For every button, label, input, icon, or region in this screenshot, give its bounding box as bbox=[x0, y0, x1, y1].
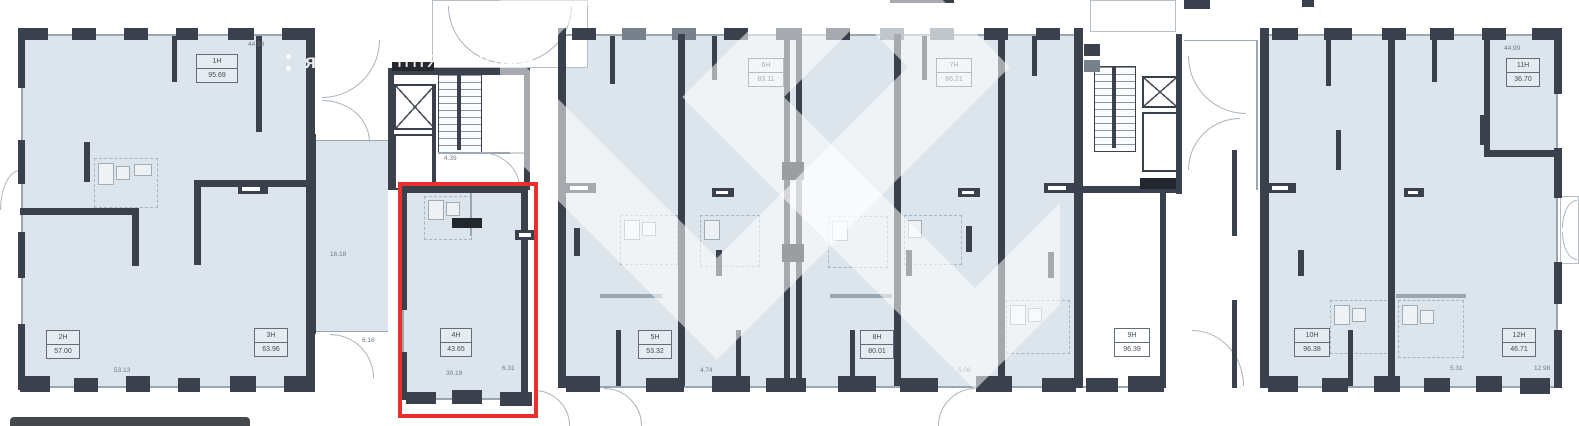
dimension-label: 44.33 bbox=[248, 42, 264, 49]
fixture bbox=[1028, 308, 1042, 322]
wall-line bbox=[1268, 34, 1558, 36]
pilaster bbox=[930, 28, 954, 40]
wall-line bbox=[316, 331, 388, 332]
door-arc bbox=[938, 388, 976, 426]
door-arc bbox=[0, 170, 20, 210]
wall-stub bbox=[610, 36, 615, 84]
door-wedge bbox=[1084, 60, 1100, 72]
door-arc bbox=[322, 100, 370, 142]
wall-segment bbox=[558, 28, 566, 388]
unit-id: 8Н bbox=[861, 331, 893, 345]
shaft-block bbox=[1140, 178, 1176, 189]
pilaster bbox=[178, 378, 200, 392]
wall-segment bbox=[132, 208, 139, 266]
dimension-label: 5.31 bbox=[1450, 366, 1463, 373]
unit-area: 95.69 bbox=[197, 69, 237, 82]
unit-id: 12Н bbox=[1503, 329, 1535, 343]
pilaster bbox=[1374, 376, 1400, 392]
wall-stub bbox=[1298, 250, 1304, 276]
wall-stub bbox=[906, 250, 912, 276]
pilaster bbox=[176, 28, 198, 40]
wall-stub bbox=[1048, 252, 1054, 278]
unit-label-10n[interactable]: 10Н 96.38 bbox=[1294, 328, 1330, 357]
unit-label-1n[interactable]: 1Н 95.69 bbox=[196, 54, 238, 83]
stair-stringer bbox=[1112, 66, 1116, 148]
pilaster bbox=[712, 376, 750, 392]
elevator-shaft bbox=[1142, 112, 1178, 172]
pilaster bbox=[838, 376, 876, 392]
unit-area: 57.00 bbox=[47, 345, 79, 358]
pilaster bbox=[1520, 378, 1550, 394]
wall-stub bbox=[616, 330, 621, 386]
unit-id: 6Н bbox=[749, 59, 783, 73]
unit-label-11n[interactable]: 11Н 36.70 bbox=[1506, 58, 1540, 87]
unit-id: 11Н bbox=[1507, 59, 1539, 73]
watermark-dot bbox=[286, 54, 291, 59]
party-wall bbox=[894, 34, 901, 386]
unit-label-8n[interactable]: 8Н 80.01 bbox=[860, 330, 894, 359]
wall-segment bbox=[20, 208, 136, 215]
pilaster bbox=[1036, 28, 1060, 40]
door-arc bbox=[1562, 200, 1577, 228]
dimension-label: 6.16 bbox=[362, 338, 375, 345]
watermark-dot bbox=[286, 66, 291, 71]
unit-id: 1Н bbox=[197, 55, 237, 69]
unit-id: 9Н bbox=[1115, 329, 1149, 343]
fixture bbox=[908, 220, 922, 238]
unit-label-7n[interactable]: 7Н 86.21 bbox=[936, 58, 972, 87]
wall-line bbox=[830, 294, 892, 298]
unit-label-12n[interactable]: 12Н 46.71 bbox=[1502, 328, 1536, 357]
fixture bbox=[704, 220, 720, 240]
pilaster bbox=[228, 28, 254, 40]
plan-fragment bbox=[890, 0, 954, 3]
wall-segment bbox=[1554, 330, 1562, 388]
door-arc bbox=[1562, 232, 1577, 260]
elevator bbox=[1142, 76, 1178, 108]
wall-segment bbox=[310, 134, 316, 334]
shaft-block bbox=[782, 162, 804, 180]
pilaster bbox=[1268, 376, 1298, 392]
unit-area: 53.32 bbox=[639, 345, 671, 358]
unit-id: 2Н bbox=[47, 331, 79, 345]
party-wall bbox=[784, 34, 790, 386]
unit-id: 3Н bbox=[255, 329, 287, 343]
wall-segment bbox=[1554, 262, 1562, 304]
wall-segment bbox=[18, 324, 25, 390]
entrance-canopy bbox=[1090, 0, 1176, 32]
wall-stub bbox=[1348, 330, 1353, 386]
unit-label-6n[interactable]: 6Н 83.11 bbox=[748, 58, 784, 87]
wall-segment bbox=[432, 84, 436, 186]
wall-segment bbox=[1484, 150, 1560, 157]
wall-segment bbox=[1554, 28, 1562, 94]
unit-id: 5Н bbox=[639, 331, 671, 345]
unit-id: 10Н bbox=[1295, 329, 1329, 343]
wall-segment bbox=[256, 36, 262, 132]
door-arc bbox=[322, 40, 380, 98]
wall-line bbox=[1268, 386, 1558, 388]
door-wedge bbox=[1084, 44, 1100, 56]
unit-area: 80.01 bbox=[861, 345, 893, 358]
door-arc bbox=[1188, 56, 1246, 114]
unit-area: 63.96 bbox=[255, 343, 287, 356]
unit-label-2n[interactable]: 2Н 57.00 bbox=[46, 330, 80, 359]
watermark-text-fragment: гни bbox=[336, 20, 367, 42]
shaft-block bbox=[392, 62, 434, 71]
wall-segment bbox=[1260, 28, 1269, 388]
counter-slot bbox=[962, 191, 974, 194]
party-wall bbox=[678, 34, 685, 386]
fixture bbox=[1010, 305, 1026, 325]
dimension-label: 4.39 bbox=[444, 156, 457, 163]
pilaster bbox=[74, 378, 98, 392]
door-arc bbox=[448, 6, 508, 64]
fixture bbox=[642, 222, 656, 236]
wall-line bbox=[20, 386, 312, 388]
pilaster bbox=[826, 28, 850, 40]
wall-segment bbox=[1160, 192, 1166, 388]
fixture bbox=[1352, 308, 1366, 322]
fixture bbox=[624, 220, 640, 240]
wall-stub bbox=[1432, 36, 1437, 82]
floor-plan: 1Н 95.69 2Н 57.00 3Н 63.96 44.33 53.13 6… bbox=[0, 0, 1579, 426]
unit-area: 86.21 bbox=[937, 73, 971, 86]
counter-slot bbox=[570, 186, 588, 190]
unit-label-5n[interactable]: 5Н 53.32 bbox=[638, 330, 672, 359]
plan-fragment bbox=[1302, 0, 1314, 7]
pilaster bbox=[572, 28, 596, 40]
pilaster bbox=[230, 376, 256, 392]
fixture bbox=[116, 166, 130, 180]
dimension-label: 44.99 bbox=[1504, 46, 1520, 53]
shaft-block bbox=[782, 244, 804, 262]
counter-slot bbox=[1408, 191, 1418, 194]
dimension-label: 16.18 bbox=[330, 252, 346, 259]
pilaster bbox=[566, 376, 600, 392]
unit-area: 36.70 bbox=[1507, 73, 1539, 86]
pilaster bbox=[1128, 376, 1164, 392]
dimension-label: 4.74 bbox=[700, 368, 713, 375]
wall-segment bbox=[524, 68, 530, 190]
wall-stub bbox=[574, 228, 580, 256]
wall-stub bbox=[172, 36, 177, 82]
pilaster bbox=[1322, 378, 1348, 392]
room-fill bbox=[316, 140, 388, 332]
unit-label-9n[interactable]: 9Н 96.39 bbox=[1114, 328, 1150, 357]
wall-stub bbox=[1326, 36, 1331, 86]
unit-area: 96.39 bbox=[1115, 343, 1149, 356]
fixture bbox=[98, 163, 114, 185]
wall-segment bbox=[18, 232, 25, 278]
party-wall bbox=[1074, 28, 1083, 388]
wall-segment bbox=[1232, 300, 1237, 388]
wall-segment bbox=[1232, 150, 1237, 236]
pilaster bbox=[724, 28, 748, 40]
wall-segment bbox=[18, 140, 25, 184]
fixture bbox=[134, 164, 152, 176]
selected-unit-highlight[interactable] bbox=[398, 182, 538, 418]
dimension-label: 5.06 bbox=[958, 368, 971, 375]
wall-segment bbox=[1484, 34, 1490, 152]
pilaster bbox=[1042, 378, 1076, 392]
fixture bbox=[1334, 305, 1350, 325]
party-wall bbox=[796, 34, 802, 386]
pilaster bbox=[1086, 378, 1118, 392]
wall-line bbox=[600, 294, 662, 298]
wall-stub bbox=[736, 330, 741, 386]
door-arc bbox=[534, 390, 570, 426]
wall-segment bbox=[18, 28, 25, 88]
pilaster bbox=[126, 376, 150, 392]
pilaster bbox=[1424, 378, 1450, 392]
pilaster bbox=[622, 28, 646, 40]
wall-stub bbox=[84, 142, 90, 182]
bottom-panel-edge bbox=[10, 417, 250, 426]
wall-stub bbox=[922, 36, 927, 80]
fixture bbox=[1402, 305, 1418, 325]
wall-line bbox=[20, 34, 312, 36]
door-arc bbox=[604, 388, 642, 426]
wall-line bbox=[1184, 40, 1258, 41]
wall-line bbox=[1396, 294, 1466, 298]
wall-stub bbox=[966, 226, 972, 252]
counter-slot bbox=[242, 187, 260, 191]
counter-slot bbox=[1272, 186, 1288, 190]
wall-stub bbox=[1336, 130, 1341, 170]
stair-stringer bbox=[457, 74, 461, 150]
wall-stub bbox=[712, 36, 717, 80]
unit-area: 83.11 bbox=[749, 73, 783, 86]
pilaster bbox=[1476, 376, 1502, 392]
unit-id: 7Н bbox=[937, 59, 971, 73]
dimension-label: 53.13 bbox=[114, 368, 130, 375]
pilaster bbox=[1272, 28, 1298, 40]
fixture bbox=[1420, 310, 1434, 324]
dimension-label: 12.98 bbox=[1534, 366, 1550, 373]
wall-segment bbox=[194, 187, 201, 265]
pilaster bbox=[72, 28, 96, 40]
counter-slot bbox=[716, 191, 728, 194]
party-wall bbox=[1388, 34, 1395, 386]
unit-label-3n[interactable]: 3Н 63.96 bbox=[254, 328, 288, 357]
wall-stub bbox=[850, 330, 855, 386]
wall-stub bbox=[716, 250, 722, 276]
unit-area: 46.71 bbox=[1503, 343, 1535, 356]
party-wall bbox=[998, 34, 1005, 386]
counter-slot bbox=[1048, 186, 1066, 190]
wall-line bbox=[1256, 40, 1258, 190]
pilaster bbox=[124, 28, 148, 40]
unit-area: 96.38 bbox=[1295, 343, 1329, 356]
wall-stub bbox=[1032, 36, 1037, 76]
pilaster bbox=[976, 376, 1012, 392]
pilaster bbox=[900, 378, 938, 392]
fixture bbox=[832, 221, 848, 241]
plan-fragment bbox=[1184, 0, 1210, 9]
elevator bbox=[394, 84, 436, 130]
